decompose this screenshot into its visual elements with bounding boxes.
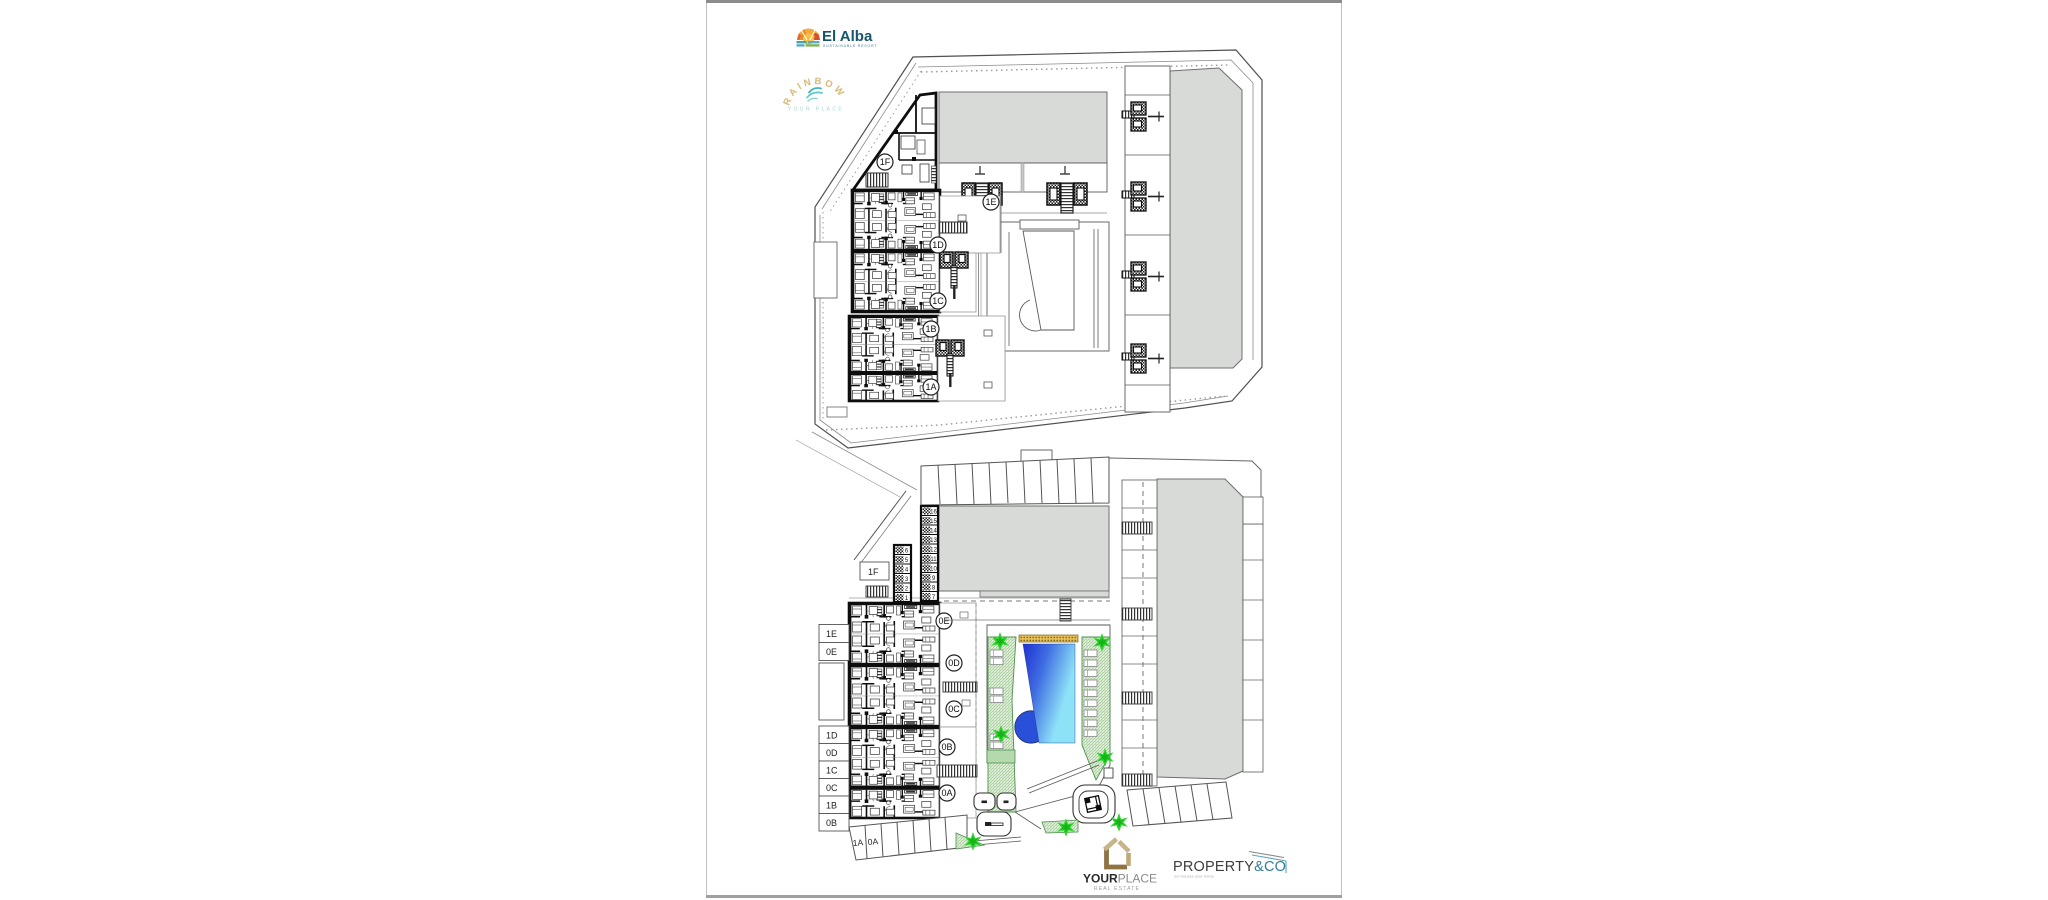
svg-text:14: 14 [930, 529, 937, 535]
svg-text:13: 13 [930, 538, 937, 544]
svg-text:0C: 0C [826, 783, 838, 793]
svg-text:1D: 1D [826, 731, 838, 741]
svg-text:0B: 0B [826, 818, 837, 828]
svg-text:0D: 0D [948, 658, 960, 668]
svg-text:10: 10 [930, 567, 937, 573]
svg-text:1A: 1A [925, 382, 936, 392]
svg-text:0E: 0E [938, 616, 949, 626]
svg-text:1D: 1D [932, 240, 944, 250]
svg-text:SUSTAINABLE RESORT: SUSTAINABLE RESORT [823, 44, 877, 48]
svg-text:1B: 1B [826, 801, 837, 811]
svg-text:1C: 1C [932, 296, 944, 306]
svg-text:REAL ESTATE: REAL ESTATE [1094, 886, 1140, 892]
svg-text:El Alba: El Alba [822, 28, 873, 45]
svg-text:0B: 0B [941, 742, 952, 752]
svg-text:1F: 1F [880, 157, 891, 167]
svg-text:1F: 1F [868, 567, 879, 577]
svg-text:our houses your home: our houses your home [1174, 874, 1215, 879]
svg-text:1E: 1E [826, 629, 837, 639]
svg-text:YOURPLACE: YOURPLACE [1083, 872, 1157, 886]
svg-text:0C: 0C [948, 704, 960, 714]
svg-text:16: 16 [930, 510, 937, 516]
svg-text:12: 12 [930, 548, 937, 554]
svg-text:0A: 0A [941, 788, 952, 798]
svg-text:1B: 1B [925, 324, 936, 334]
svg-text:0D: 0D [826, 748, 838, 758]
svg-text:0E: 0E [826, 647, 837, 657]
svg-text:1A: 1A [852, 837, 864, 848]
svg-text:0A: 0A [867, 836, 879, 847]
svg-text:11: 11 [930, 557, 937, 563]
svg-text:15: 15 [930, 519, 937, 525]
svg-text:1E: 1E [985, 197, 996, 207]
svg-text:1C: 1C [826, 766, 838, 776]
svg-text:YOUR PLACE: YOUR PLACE [788, 107, 844, 113]
